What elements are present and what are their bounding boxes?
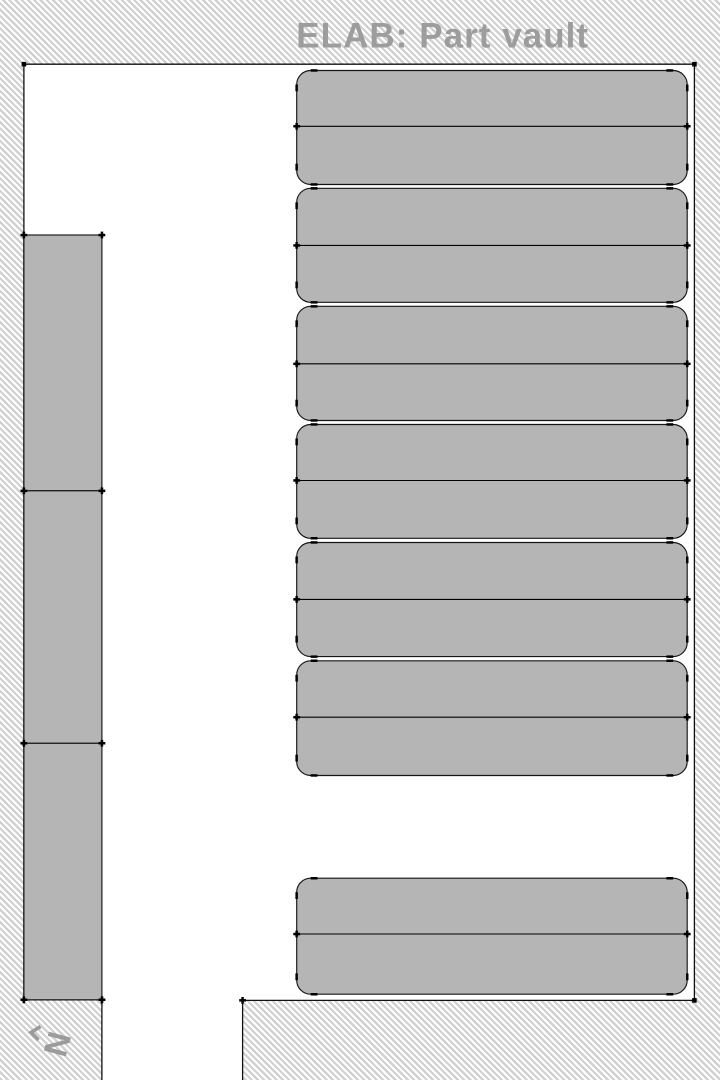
svg-text:ELAB: Part vault: ELAB: Part vault (296, 16, 589, 55)
svg-text:N: N (37, 1028, 79, 1061)
